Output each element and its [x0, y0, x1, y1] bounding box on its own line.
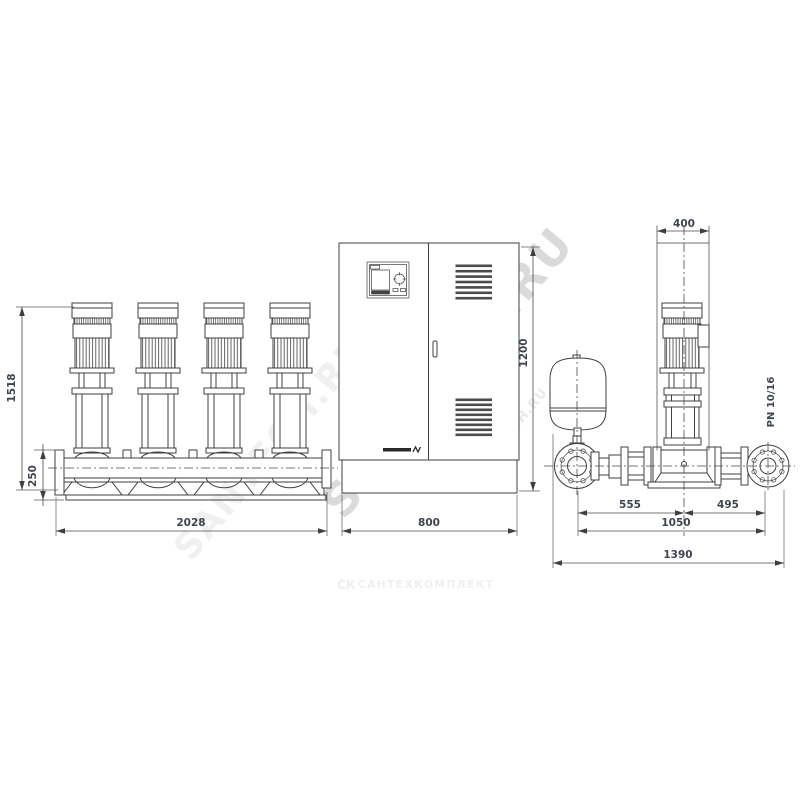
dim-label-total-width: 1390: [663, 549, 692, 561]
dim-label-motor-width: 400: [673, 218, 695, 230]
pump-unit-2: [136, 303, 180, 458]
controller-panel: [367, 262, 409, 298]
pump-set-technical-drawing: SANTECH.RU SANTECH.RU SANTECH.RU: [0, 0, 800, 800]
dim-label-cabinet-width: 800: [418, 517, 440, 529]
control-cabinet: 1200 800: [339, 243, 540, 536]
side-view: PN 10/16 400 555 495 1050 139: [544, 218, 795, 568]
door-handle: [433, 341, 437, 357]
pump-volutes: [62, 478, 320, 495]
pump-unit-3: [202, 303, 246, 458]
manifold-flange-right: [322, 450, 331, 488]
base-frame: [62, 482, 326, 500]
manifold-flange-left: [55, 450, 64, 495]
pressure-rating-label: PN 10/16: [766, 377, 777, 428]
dim-label-tank-to-center: 555: [619, 499, 641, 511]
drawing-canvas: SANTECH.RU SANTECH.RU SANTECH.RU: [0, 0, 800, 800]
footer-company: САНТЕХКОМПЛЕКТ: [358, 579, 494, 591]
diaphragm-tank: [550, 355, 606, 452]
dim-label-front-height: 1518: [6, 373, 18, 402]
dim-label-front-width: 2028: [176, 517, 205, 529]
dim-label-cabinet-height: 1200: [518, 338, 530, 367]
dim-label-center-to-outlet: 495: [717, 499, 739, 511]
footer-brand: СК САНТЕХКОМПЛЕКТ: [337, 578, 494, 592]
motor-terminal-box: [698, 325, 709, 347]
cabinet-plinth: [342, 460, 517, 493]
dim-label-manifold-height: 250: [27, 465, 39, 487]
dim-label-inner-span: 1050: [661, 517, 690, 529]
front-view: 1518 250 2028: [6, 303, 338, 536]
pump-unit-1: [70, 303, 114, 458]
pump-units: [70, 303, 312, 458]
footer-logo: СК: [337, 578, 356, 592]
